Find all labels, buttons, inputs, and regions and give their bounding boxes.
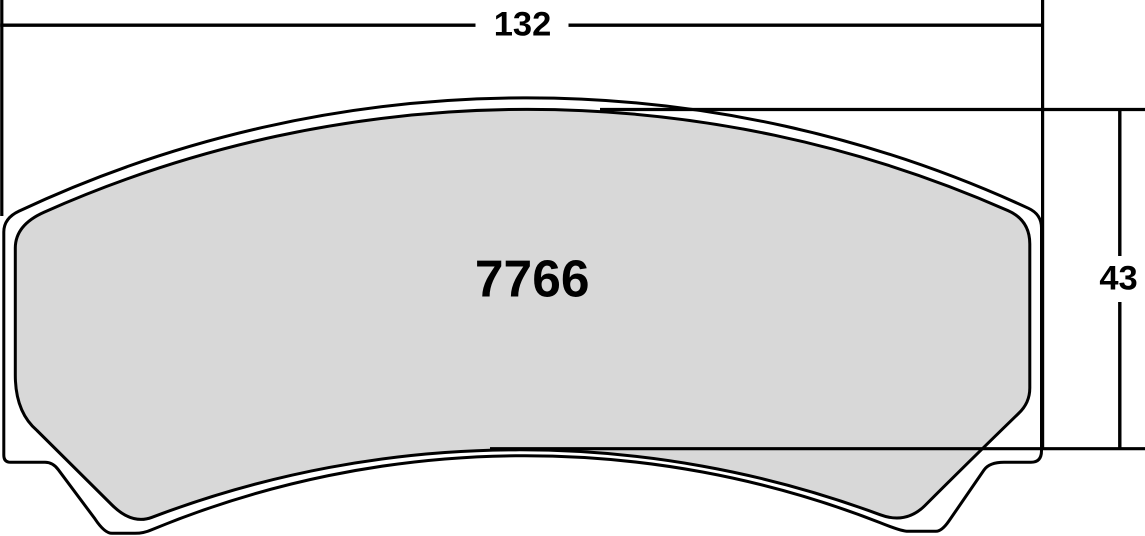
svg-text:132: 132 — [494, 6, 552, 44]
svg-text:43: 43 — [1099, 259, 1137, 297]
svg-text:7766: 7766 — [475, 249, 590, 307]
